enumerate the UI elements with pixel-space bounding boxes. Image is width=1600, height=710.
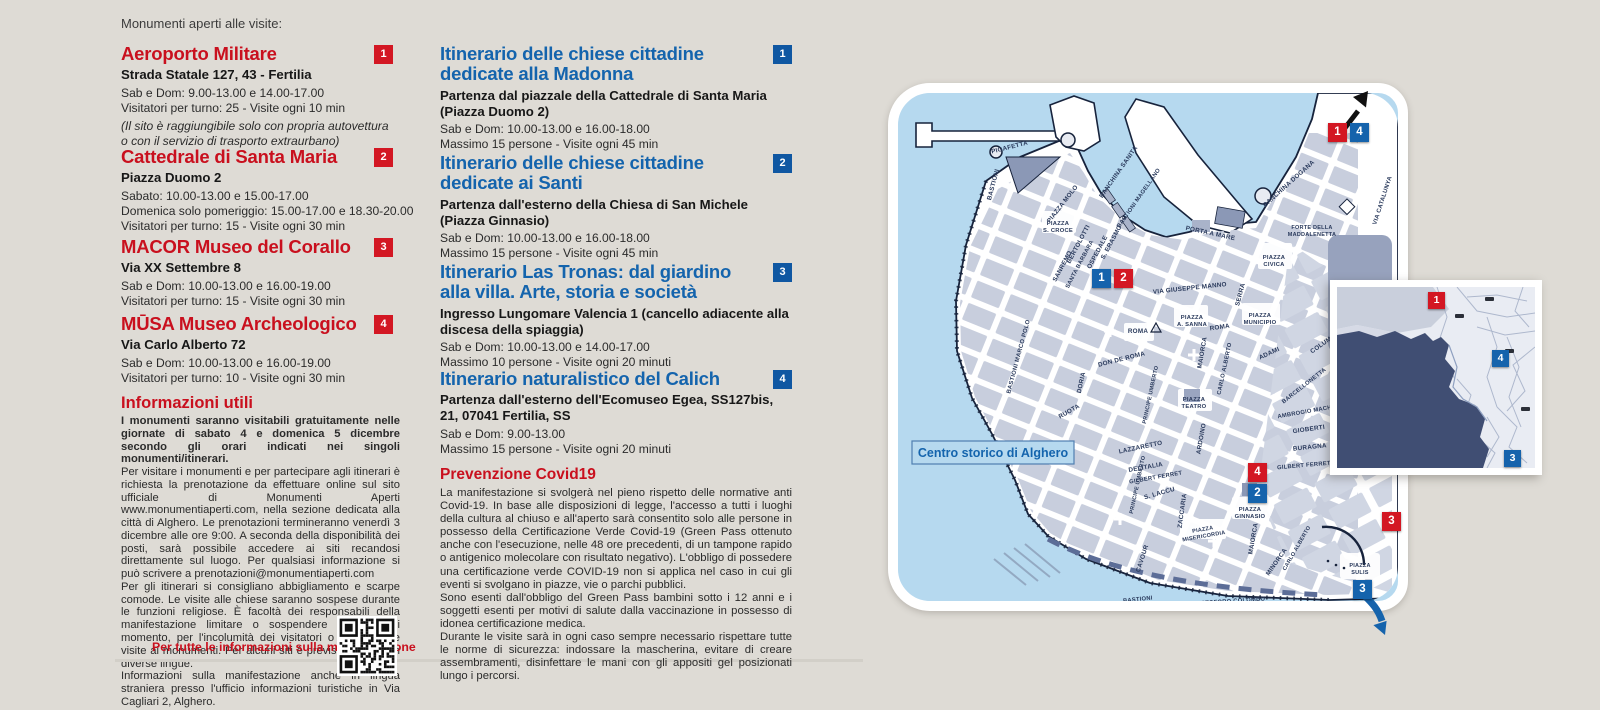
- map-marker-red-3: 3: [1382, 512, 1401, 531]
- brochure-page: Monumenti aperti alle visite: Aeroporto …: [0, 0, 1600, 710]
- map-marker-blue-4: 4: [1350, 123, 1369, 142]
- monument-number-badge: 1: [374, 45, 393, 64]
- itinerary-number-badge: 1: [773, 45, 792, 64]
- itinerary-schedule-line: Sab e Dom: 10.00-13.00 e 16.00-18.00: [440, 122, 792, 137]
- qr-code-svg: [337, 616, 397, 676]
- monument-title-text: Cattedrale di Santa Maria: [121, 146, 337, 167]
- itinerary-schedule-line: Massimo 15 persone - Visite ogni 45 min: [440, 137, 792, 152]
- itinerary-subtitle: Partenza dall'esterno dell'Ecomuseo Egea…: [440, 392, 792, 424]
- monument-schedule-line: Visitatori per turno: 25 - Visite ogni 1…: [121, 101, 393, 116]
- monument-title: MŪSA Museo Archeologico4: [121, 314, 393, 334]
- itinerary-subtitle: Partenza dal piazzale della Cattedrale d…: [440, 88, 792, 120]
- itinerary-title: Itinerario naturalistico del Calich4: [440, 369, 792, 389]
- monument-title: Aeroporto Militare1: [121, 44, 393, 64]
- map-marker-blue-2: 2: [1248, 484, 1267, 503]
- itinerary-schedule-line: Sab e Dom: 10.00-13.00 e 14.00-17.00: [440, 340, 792, 355]
- monument-schedule-line: Sab e Dom: 9.00-13.00 e 14.00-17.00: [121, 86, 393, 101]
- street-label: PIAZZAA. SANNA: [1177, 315, 1208, 328]
- itinerary-schedule-line: Massimo 15 persone - Visite ogni 20 minu…: [440, 442, 792, 457]
- monument-title: MACOR Museo del Corallo3: [121, 237, 393, 257]
- street-label: PIAZZAS. CROCE: [1043, 221, 1073, 234]
- monument-title: Cattedrale di Santa Maria2: [121, 147, 393, 167]
- inset-map-marker-red-1: 1: [1428, 292, 1445, 309]
- itinerary-section: Itinerario delle chiese cittadine dedica…: [440, 153, 792, 262]
- itinerary-title-text: Itinerario delle chiese cittadine dedica…: [440, 43, 704, 84]
- map-marker-blue-3: 3: [1353, 580, 1372, 599]
- map-marker-blue-1: 1: [1092, 269, 1111, 288]
- monument-schedule-line: Visitatori per turno: 10 - Visite ogni 3…: [121, 371, 393, 386]
- monument-number-badge: 2: [374, 148, 393, 167]
- itinerary-title-text: Itinerario Las Tronas: dal giardino alla…: [440, 261, 731, 302]
- monument-section: MACOR Museo del Corallo3 Via XX Settembr…: [121, 237, 393, 309]
- street-label: FORTE DELLAMADDALENETTA: [1288, 225, 1336, 238]
- map-marker-red-1: 1: [1328, 123, 1347, 142]
- monument-title-text: MŪSA Museo Archeologico: [121, 313, 357, 334]
- street-label: PIAZZACIVICA: [1263, 255, 1286, 268]
- info-bold-intro: I monumenti saranno visitabili gratuitam…: [121, 415, 400, 466]
- inset-map-marker-blue-3: 3: [1504, 450, 1521, 467]
- itinerary-number-badge: 3: [773, 263, 792, 282]
- monument-address: Via XX Settembre 8: [121, 260, 393, 276]
- itinerary-number-badge: 2: [773, 154, 792, 173]
- monument-schedule-line: Visitatori per turno: 15 - Visite ogni 3…: [121, 294, 393, 309]
- itinerary-section: Itinerario Las Tronas: dal giardino alla…: [440, 262, 792, 371]
- inset-map: [1330, 280, 1542, 475]
- street-label: PIAZZATEATRO: [1182, 397, 1207, 410]
- map-svg: PIGAFETTABASTIONIPIAZZA MOLOBANCHINA SAN…: [898, 93, 1398, 601]
- monument-section: MŪSA Museo Archeologico4 Via Carlo Alber…: [121, 314, 393, 386]
- monument-section: Cattedrale di Santa Maria2 Piazza Duomo …: [121, 147, 393, 235]
- itinerary-section: Itinerario delle chiese cittadine dedica…: [440, 44, 792, 153]
- monument-address: Piazza Duomo 2: [121, 170, 393, 186]
- map-marker-red-4: 4: [1248, 463, 1267, 482]
- monument-schedule-line: Sabato: 10.00-13.00 e 15.00-17.00: [121, 189, 393, 204]
- itinerary-title-text: Itinerario naturalistico del Calich: [440, 368, 720, 389]
- map-caption-box: Centro storico di Alghero: [912, 441, 1074, 464]
- covid-body: La manifestazione si svolgerà nel pieno …: [440, 487, 792, 683]
- itinerary-title-text: Itinerario delle chiese cittadine dedica…: [440, 152, 704, 193]
- covid-heading: Prevenzione Covid19: [440, 466, 596, 484]
- street-label: ROMA: [1128, 328, 1148, 335]
- monument-schedule-line: Domenica solo pomeriggio: 15.00-17.00 e …: [121, 204, 393, 219]
- itinerary-schedule-line: Sab e Dom: 10.00-13.00 e 16.00-18.00: [440, 231, 792, 246]
- monument-address: Via Carlo Alberto 72: [121, 337, 393, 353]
- monument-schedule-line: Sab e Dom: 10.00-13.00 e 16.00-19.00: [121, 279, 393, 294]
- inset-map-svg: [1337, 287, 1535, 468]
- info-paragraph: Per visitare i monumenti e per partecipa…: [121, 466, 400, 581]
- monument-title-text: Aeroporto Militare: [121, 43, 277, 64]
- inset-map-marker-blue-4: 4: [1492, 350, 1509, 367]
- covid-paragraph: Sono esenti dall'obbligo del Green Pass …: [440, 592, 792, 631]
- route-exit-arrow-icon: [1358, 593, 1398, 639]
- itinerary-title: Itinerario Las Tronas: dal giardino alla…: [440, 262, 792, 303]
- itinerary-subtitle: Ingresso Lungomare Valencia 1 (cancello …: [440, 306, 792, 338]
- monument-note: (Il sito è raggiungibile solo con propri…: [121, 119, 393, 149]
- itinerary-schedule-line: Massimo 15 persone - Visite ogni 45 min: [440, 246, 792, 261]
- info-heading: Informazioni utili: [121, 394, 253, 413]
- itinerary-section: Itinerario naturalistico del Calich4 Par…: [440, 369, 792, 457]
- itinerary-title: Itinerario delle chiese cittadine dedica…: [440, 153, 792, 194]
- qr-code: [337, 616, 397, 676]
- info-paragraph: Informazioni sulla manifestazione anche …: [121, 670, 400, 708]
- map-area: PIGAFETTABASTIONIPIAZZA MOLOBANCHINA SAN…: [880, 75, 1570, 635]
- street-label: PIAZZAGINNASIO: [1235, 507, 1266, 520]
- map-marker-red-2: 2: [1114, 269, 1133, 288]
- itinerary-number-badge: 4: [773, 370, 792, 389]
- covid-paragraph: Durante le visite sarà in ogni caso semp…: [440, 631, 792, 683]
- street-label: PIAZZASULIS: [1349, 563, 1370, 576]
- intro-text: Monumenti aperti alle visite:: [121, 16, 282, 31]
- itinerary-subtitle: Partenza dall'esterno della Chiesa di Sa…: [440, 197, 792, 229]
- covid-paragraph: La manifestazione si svolgerà nel pieno …: [440, 487, 792, 592]
- monument-number-badge: 3: [374, 238, 393, 257]
- monument-address: Strada Statale 127, 43 - Fertilia: [121, 67, 393, 83]
- monument-title-text: MACOR Museo del Corallo: [121, 236, 351, 257]
- monument-schedule-line: Sab e Dom: 10.00-13.00 e 16.00-19.00: [121, 356, 393, 371]
- itinerary-title: Itinerario delle chiese cittadine dedica…: [440, 44, 792, 85]
- monument-section: Aeroporto Militare1 Strada Statale 127, …: [121, 44, 393, 149]
- monument-number-badge: 4: [374, 315, 393, 334]
- itinerary-schedule-line: Sab e Dom: 9.00-13.00: [440, 427, 792, 442]
- map-caption: Centro storico di Alghero: [918, 446, 1069, 460]
- monument-schedule-line: Visitatori per turno: 15 - Visite ogni 3…: [121, 219, 393, 234]
